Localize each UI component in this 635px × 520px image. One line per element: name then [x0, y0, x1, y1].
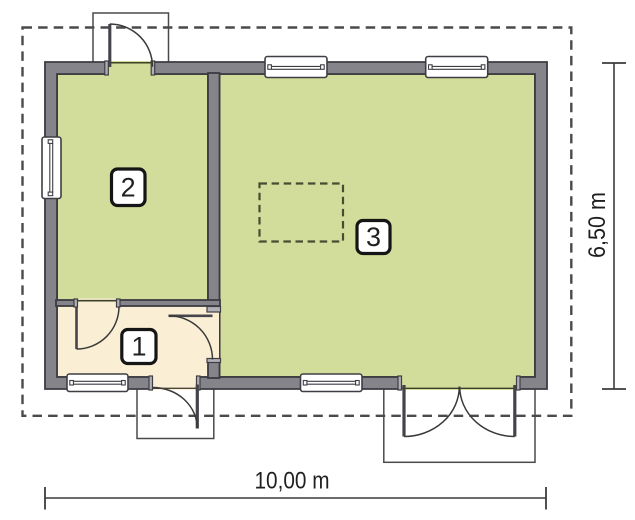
svg-text:1: 1: [131, 332, 146, 362]
svg-text:10,00 m: 10,00 m: [255, 468, 330, 495]
svg-text:6,50 m: 6,50 m: [584, 192, 611, 258]
svg-text:2: 2: [121, 173, 136, 203]
svg-text:3: 3: [366, 222, 381, 252]
